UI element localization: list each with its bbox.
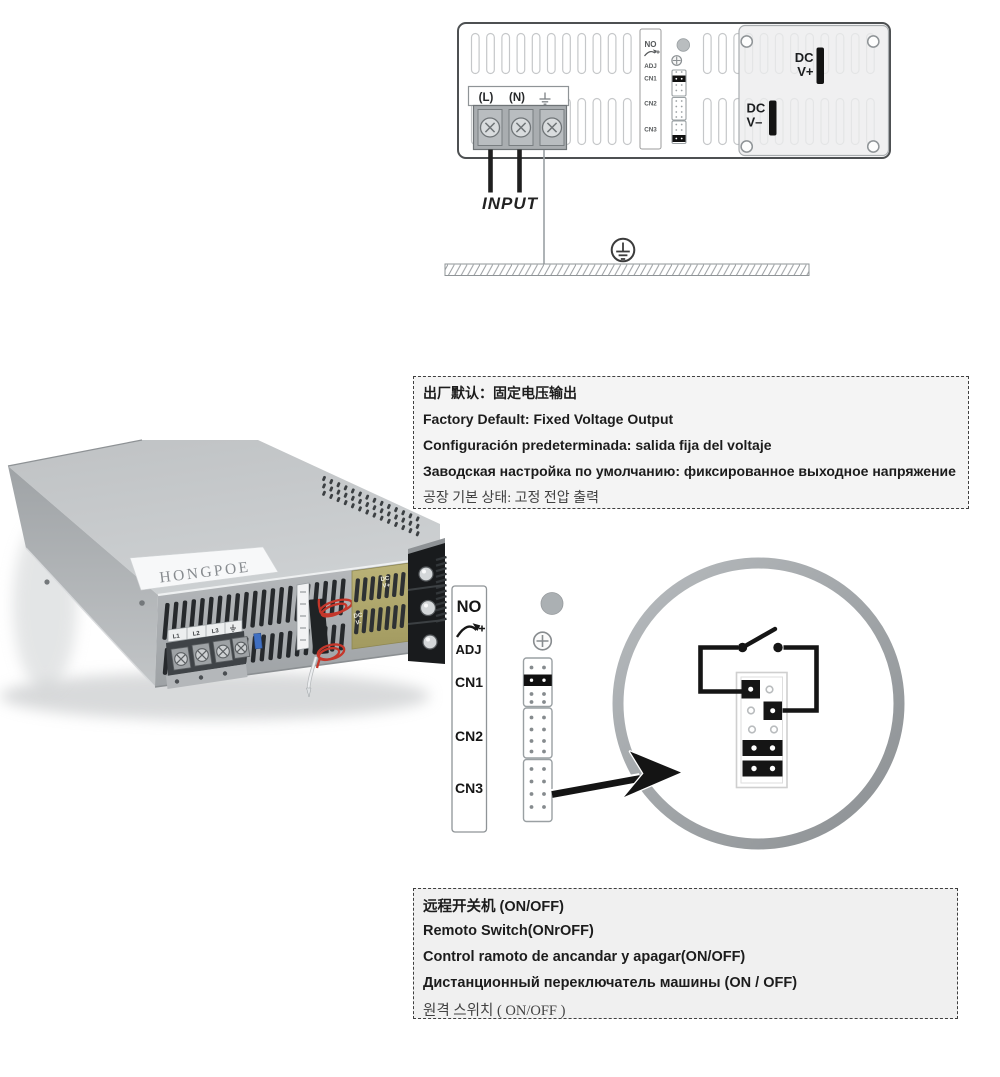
cn1-jumper xyxy=(524,675,552,687)
screw-terminals xyxy=(478,110,564,146)
product-manual-page: DC V+ DC V– NO ADJ CN1 CN2 CN3 xyxy=(0,0,1000,1077)
input-label: INPUT xyxy=(482,194,539,213)
dc-vminus-busbar xyxy=(769,101,777,136)
pcb-dc-vplus-line2: V+ xyxy=(382,583,391,590)
note-line-es: Configuración predeterminada: salida fij… xyxy=(414,432,968,458)
pin-header xyxy=(524,658,553,822)
psu-product-photo: HONGPOE L1 L2 L3 xyxy=(0,440,450,730)
jumper-row-1 xyxy=(743,740,783,756)
dc-vplus-busbar xyxy=(817,48,825,85)
cn3-label: CN3 xyxy=(455,780,483,796)
live-label: (L) xyxy=(479,92,494,104)
cn2-label: CN2 xyxy=(455,728,483,744)
dc-vplus-terminal: DC V+ xyxy=(795,48,824,85)
side-screw xyxy=(139,600,145,606)
cn2-label-small: CN2 xyxy=(644,101,657,108)
jumper-bottom xyxy=(673,135,686,142)
cn1-label-small: CN1 xyxy=(644,76,657,83)
note-line-zh: 出厂默认：固定电压输出 xyxy=(414,380,968,406)
dc-vminus-label-line1: DC xyxy=(747,101,766,116)
screw-icon xyxy=(672,56,682,66)
pcb-dc-vminus-line2: V- xyxy=(355,620,361,627)
connector-label-strip-small: NO ADJ CN1 CN2 CN3 xyxy=(640,29,661,149)
indicator-dot xyxy=(677,39,690,52)
protective-earth-icon xyxy=(612,239,635,262)
note-line-ru: Дистанционный переключатель машины (ON /… xyxy=(414,970,957,996)
cn3-label-small: CN3 xyxy=(644,127,657,134)
connector-label-strip: NO ADJ CN1 CN2 CN3 xyxy=(452,586,487,832)
note-line-ko: 공장 기본 상태: 고정 전압 출력 xyxy=(414,484,968,510)
pin-header-small xyxy=(672,70,686,144)
note-line-en: Remoto Switch(ONrOFF) xyxy=(414,918,957,944)
indicator-dot xyxy=(541,593,563,615)
remote-switch-note: 远程开关机 (ON/OFF) Remoto Switch(ONrOFF) Con… xyxy=(413,888,958,1019)
note-line-en: Factory Default: Fixed Voltage Output xyxy=(414,406,968,432)
factory-default-note: 出厂默认：固定电压输出 Factory Default: Fixed Volta… xyxy=(413,376,969,509)
side-screw xyxy=(44,579,49,584)
ground-plane xyxy=(445,264,809,276)
no-label-small: NO xyxy=(645,40,657,49)
blue-jumper xyxy=(254,633,263,649)
switch-contact-right xyxy=(773,643,782,652)
ac-input-terminal: (L) (N) xyxy=(469,87,569,150)
note-line-ko: 원격 스위치 ( ON/OFF ) xyxy=(414,996,957,1022)
neutral-label: (N) xyxy=(509,92,525,104)
rear-panel-wiring-diagram: DC V+ DC V– NO ADJ CN1 CN2 CN3 xyxy=(440,15,900,285)
note-line-zh: 远程开关机 (ON/OFF) xyxy=(414,892,957,918)
gold-pcb-panel: DC V+ DC V- xyxy=(352,563,410,649)
dc-vminus-label-line2: V– xyxy=(747,115,763,130)
screw-icon xyxy=(534,632,552,650)
dc-vplus-label-line1: DC xyxy=(795,50,814,65)
adj-label-small: ADJ xyxy=(644,63,657,70)
note-line-ru: Заводская настройка по умолчанию: фиксир… xyxy=(414,458,968,484)
jumper-top xyxy=(673,76,686,83)
jumper-row-2 xyxy=(743,761,783,777)
remote-switch-diagram: NO ADJ CN1 CN2 CN3 xyxy=(440,550,925,855)
dc-vplus-label-line2: V+ xyxy=(797,64,814,79)
cn1-label: CN1 xyxy=(455,674,483,690)
adj-label: ADJ xyxy=(455,642,481,657)
no-label: NO xyxy=(457,598,482,616)
photo-cn-strip xyxy=(297,583,309,650)
note-line-es: Control ramoto de ancandar y apagar(ON/O… xyxy=(414,944,957,970)
zoomed-connector xyxy=(737,673,788,788)
